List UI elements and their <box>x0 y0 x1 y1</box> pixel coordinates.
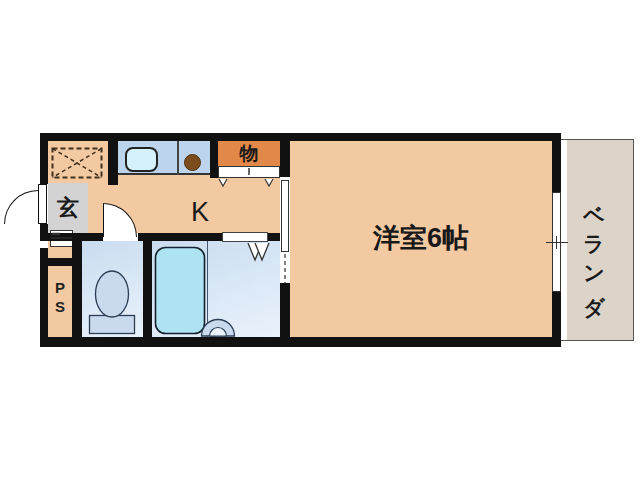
window-opening <box>552 192 561 292</box>
entrance-door-leaf <box>38 184 47 224</box>
wall-left-mid <box>40 224 48 233</box>
toilet-room-floor <box>82 241 143 337</box>
wall-hall-bottom <box>40 233 103 241</box>
bath-room-floor <box>152 241 280 337</box>
stove-burner-icon <box>184 154 201 171</box>
kitchen-sink <box>125 147 158 172</box>
counter-divider <box>177 141 179 175</box>
veranda-label: ベランダ <box>584 191 605 311</box>
wall-bath-top-left <box>138 233 222 241</box>
wall-counter-right <box>210 141 218 178</box>
wall-bottom <box>40 337 561 347</box>
wall-top <box>40 133 561 141</box>
closet-label: 物 <box>218 143 280 164</box>
wall-right-upper <box>552 133 561 192</box>
pipe-space-letter-s: S <box>48 299 72 314</box>
entrance-label: 玄 <box>48 196 88 220</box>
floor-plan: 玄 K 物 洋室6帖 ベランダ P S <box>0 0 640 480</box>
sliding-door-panel <box>281 180 289 252</box>
closet-sliding-door <box>218 166 280 178</box>
wall-mid-lower <box>280 283 290 347</box>
wall-toilet-bath <box>143 241 152 337</box>
wall-mid-upper <box>280 133 290 177</box>
wall-right-lower <box>552 292 561 347</box>
kitchen-label: K <box>182 198 218 226</box>
pipe-space-letter-p: P <box>48 280 72 295</box>
bath-door-opening <box>222 232 268 242</box>
wall-ps-right <box>72 241 82 337</box>
wall-left-upper <box>40 133 48 184</box>
western-room-label: 洋室6帖 <box>350 223 492 253</box>
pipe-space-label: P S <box>48 280 72 314</box>
wall-bath-top-right <box>268 233 280 241</box>
entrance-door-arc-icon <box>4 190 38 224</box>
wall-fridge-right <box>108 141 118 185</box>
